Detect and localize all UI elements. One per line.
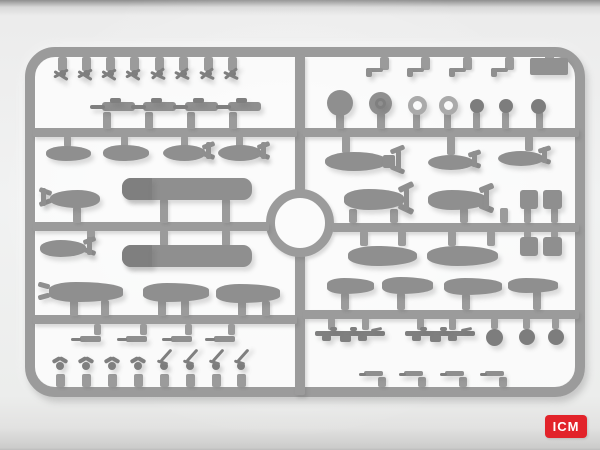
drop-tank xyxy=(444,278,502,295)
sprue-stub xyxy=(103,112,111,129)
drop-tank xyxy=(508,278,558,293)
sprue-stub xyxy=(101,300,109,316)
small-bracket-tip xyxy=(480,373,487,376)
rack-bomb xyxy=(322,335,331,341)
gun-sight xyxy=(193,98,204,103)
small-gun-barrel xyxy=(71,338,81,341)
sprue-stub xyxy=(552,318,559,329)
sprue-stub xyxy=(536,112,543,129)
drop-tank xyxy=(216,284,280,303)
sprue-stub xyxy=(181,300,189,316)
sprue-stub xyxy=(238,301,246,316)
runner-left-mid2 xyxy=(33,222,269,231)
gun-barrel xyxy=(216,105,231,109)
sprue-stub xyxy=(187,112,195,129)
drop-tank xyxy=(49,282,123,302)
embossed-plate xyxy=(530,58,568,75)
wheel-small xyxy=(470,99,484,113)
small-bracket xyxy=(364,371,383,376)
small-gun xyxy=(80,336,101,342)
bomb xyxy=(163,145,206,161)
torpedo-nose xyxy=(122,178,150,200)
sprue-stub xyxy=(70,300,78,316)
sprue-stub xyxy=(108,374,117,387)
rack-lug xyxy=(350,327,357,331)
sprue-stub xyxy=(362,318,369,330)
gun-sight xyxy=(110,98,121,103)
sprue-stub xyxy=(134,374,143,387)
torpedo-nose xyxy=(122,245,150,267)
sprue-stub xyxy=(229,112,237,129)
bomb xyxy=(46,146,91,161)
fuel-tank xyxy=(427,246,498,266)
small-bracket-tip xyxy=(440,373,447,376)
bomb-fin xyxy=(206,142,211,159)
bomb-large xyxy=(428,190,486,210)
cylinder-block xyxy=(543,190,562,209)
sprue-stub xyxy=(73,207,81,223)
sprue-stub xyxy=(525,136,533,151)
sprue-stub xyxy=(473,112,480,129)
sprue-stub xyxy=(523,318,530,329)
small-gun-barrel xyxy=(205,338,215,341)
rack-bomb xyxy=(430,335,441,342)
wheel-small xyxy=(519,329,535,345)
bomb xyxy=(40,240,86,257)
torpedo-seam xyxy=(150,245,152,267)
sprue-stub xyxy=(341,293,349,310)
drop-tank xyxy=(143,283,209,302)
bracket xyxy=(366,68,372,77)
small-bracket xyxy=(485,371,504,376)
sprue-stub xyxy=(460,208,468,223)
sprue-stub xyxy=(360,231,368,246)
sprue-stub xyxy=(140,324,147,335)
sprue-stub xyxy=(377,113,385,129)
bomb xyxy=(50,190,100,208)
tire-ring xyxy=(408,96,427,115)
tire-ring xyxy=(439,96,458,115)
bracket xyxy=(491,68,497,77)
small-hub xyxy=(56,362,64,370)
sprue-stub xyxy=(222,199,230,223)
sprue-stub xyxy=(185,324,192,335)
cylinder-block xyxy=(520,237,538,256)
sprue-stub xyxy=(145,112,153,129)
small-hub xyxy=(108,362,116,370)
sprue-stub xyxy=(222,230,230,246)
sprue-stub xyxy=(237,374,246,387)
drop-tank xyxy=(327,278,374,294)
rack-lug xyxy=(420,327,427,331)
sprue-stub xyxy=(448,231,456,246)
wheel-hub xyxy=(375,98,386,109)
torpedo-seam xyxy=(150,178,152,200)
sprue-photo-stage: ICM xyxy=(0,0,600,450)
bomb-fin xyxy=(41,188,46,206)
sprue-stub xyxy=(336,114,344,129)
sprue-stub xyxy=(487,231,495,246)
runner-right-mid2 xyxy=(332,223,579,232)
small-bracket xyxy=(404,371,423,376)
sprue-stub xyxy=(524,208,531,223)
sprue-stub xyxy=(262,301,270,316)
sprue-stub xyxy=(349,209,357,223)
small-bracket-tip xyxy=(399,373,406,376)
wheel-large xyxy=(327,90,353,116)
sprue-stub xyxy=(502,112,509,129)
bracket xyxy=(449,68,455,77)
gun-body xyxy=(185,102,218,111)
bracket xyxy=(407,68,413,77)
small-hub xyxy=(82,362,90,370)
rack-lug xyxy=(440,327,447,331)
gun-sight xyxy=(236,98,247,103)
wheel-small xyxy=(486,329,503,346)
gun-body xyxy=(143,102,176,111)
sprue-stub xyxy=(378,377,386,387)
rack-bomb xyxy=(412,335,421,341)
gun-barrel xyxy=(173,105,188,109)
cylinder-block xyxy=(520,190,538,209)
center-runner-lower xyxy=(295,255,305,395)
gun-sight xyxy=(151,98,162,103)
sprue-stub xyxy=(160,374,169,387)
sprue-stub xyxy=(533,291,541,310)
wheel-small xyxy=(548,329,564,345)
bomb-fin xyxy=(396,150,401,171)
bomb xyxy=(218,145,262,161)
sprue-stub xyxy=(398,231,406,246)
sprue-stub xyxy=(82,374,91,387)
sprue-stub xyxy=(397,293,405,310)
bomb-large xyxy=(344,189,404,210)
sprue-stub xyxy=(447,136,455,155)
bomb-fin xyxy=(484,188,489,209)
sprue-stub xyxy=(342,136,350,153)
small-gun xyxy=(214,336,235,342)
sprue-stub xyxy=(444,113,451,129)
sprue-stub xyxy=(491,318,498,329)
sprue-stub xyxy=(158,300,166,316)
runner-left-mid3 xyxy=(33,315,297,324)
small-gun xyxy=(171,336,192,342)
small-gun-barrel xyxy=(117,338,127,341)
rack-bomb xyxy=(448,335,457,341)
bomb-fin xyxy=(404,188,409,210)
small-bracket-tip xyxy=(359,373,366,376)
gun-barrel xyxy=(131,105,146,109)
small-bracket xyxy=(445,371,464,376)
gun-body xyxy=(228,102,261,111)
sprue-stub xyxy=(462,294,470,310)
bomb-fin xyxy=(261,142,266,159)
sprue-stub xyxy=(160,199,168,223)
center-ring xyxy=(266,189,334,257)
bomb-fin xyxy=(472,151,477,167)
sprue-stub xyxy=(418,377,426,387)
runner-left-mid1 xyxy=(33,128,297,137)
sprue-stub xyxy=(212,374,221,387)
sprue-stub xyxy=(186,374,195,387)
bomb-fin xyxy=(87,237,92,255)
sprue-stub xyxy=(551,208,558,223)
sprue-stub xyxy=(499,377,507,387)
runner-right-mid3 xyxy=(303,310,579,319)
small-gun xyxy=(126,336,147,342)
bomb xyxy=(103,145,149,161)
sprue-stub xyxy=(160,230,168,246)
sprue-stub xyxy=(228,324,235,335)
fuel-tank xyxy=(348,246,417,266)
sprue-stub xyxy=(390,209,398,223)
small-hub xyxy=(134,362,142,370)
bomb-large xyxy=(325,152,387,171)
rack-bomb xyxy=(358,335,367,341)
small-gun-barrel xyxy=(162,338,172,341)
sprue-stub xyxy=(500,208,508,223)
sprue-stub xyxy=(56,374,65,387)
icm-logo: ICM xyxy=(545,415,587,438)
bomb-fin xyxy=(542,147,547,163)
center-runner-upper xyxy=(295,55,305,191)
cylinder-block xyxy=(543,237,562,256)
sprue-stub xyxy=(413,113,420,129)
rack-lug xyxy=(330,327,337,331)
sprue-stub xyxy=(459,377,467,387)
sprue-stub xyxy=(94,324,101,335)
drop-tank xyxy=(382,277,433,294)
wheel-small xyxy=(531,99,546,114)
wheel-small xyxy=(499,99,513,113)
rack-bomb xyxy=(340,335,351,342)
gun-barrel xyxy=(90,105,105,109)
sprue-stub xyxy=(449,318,456,330)
